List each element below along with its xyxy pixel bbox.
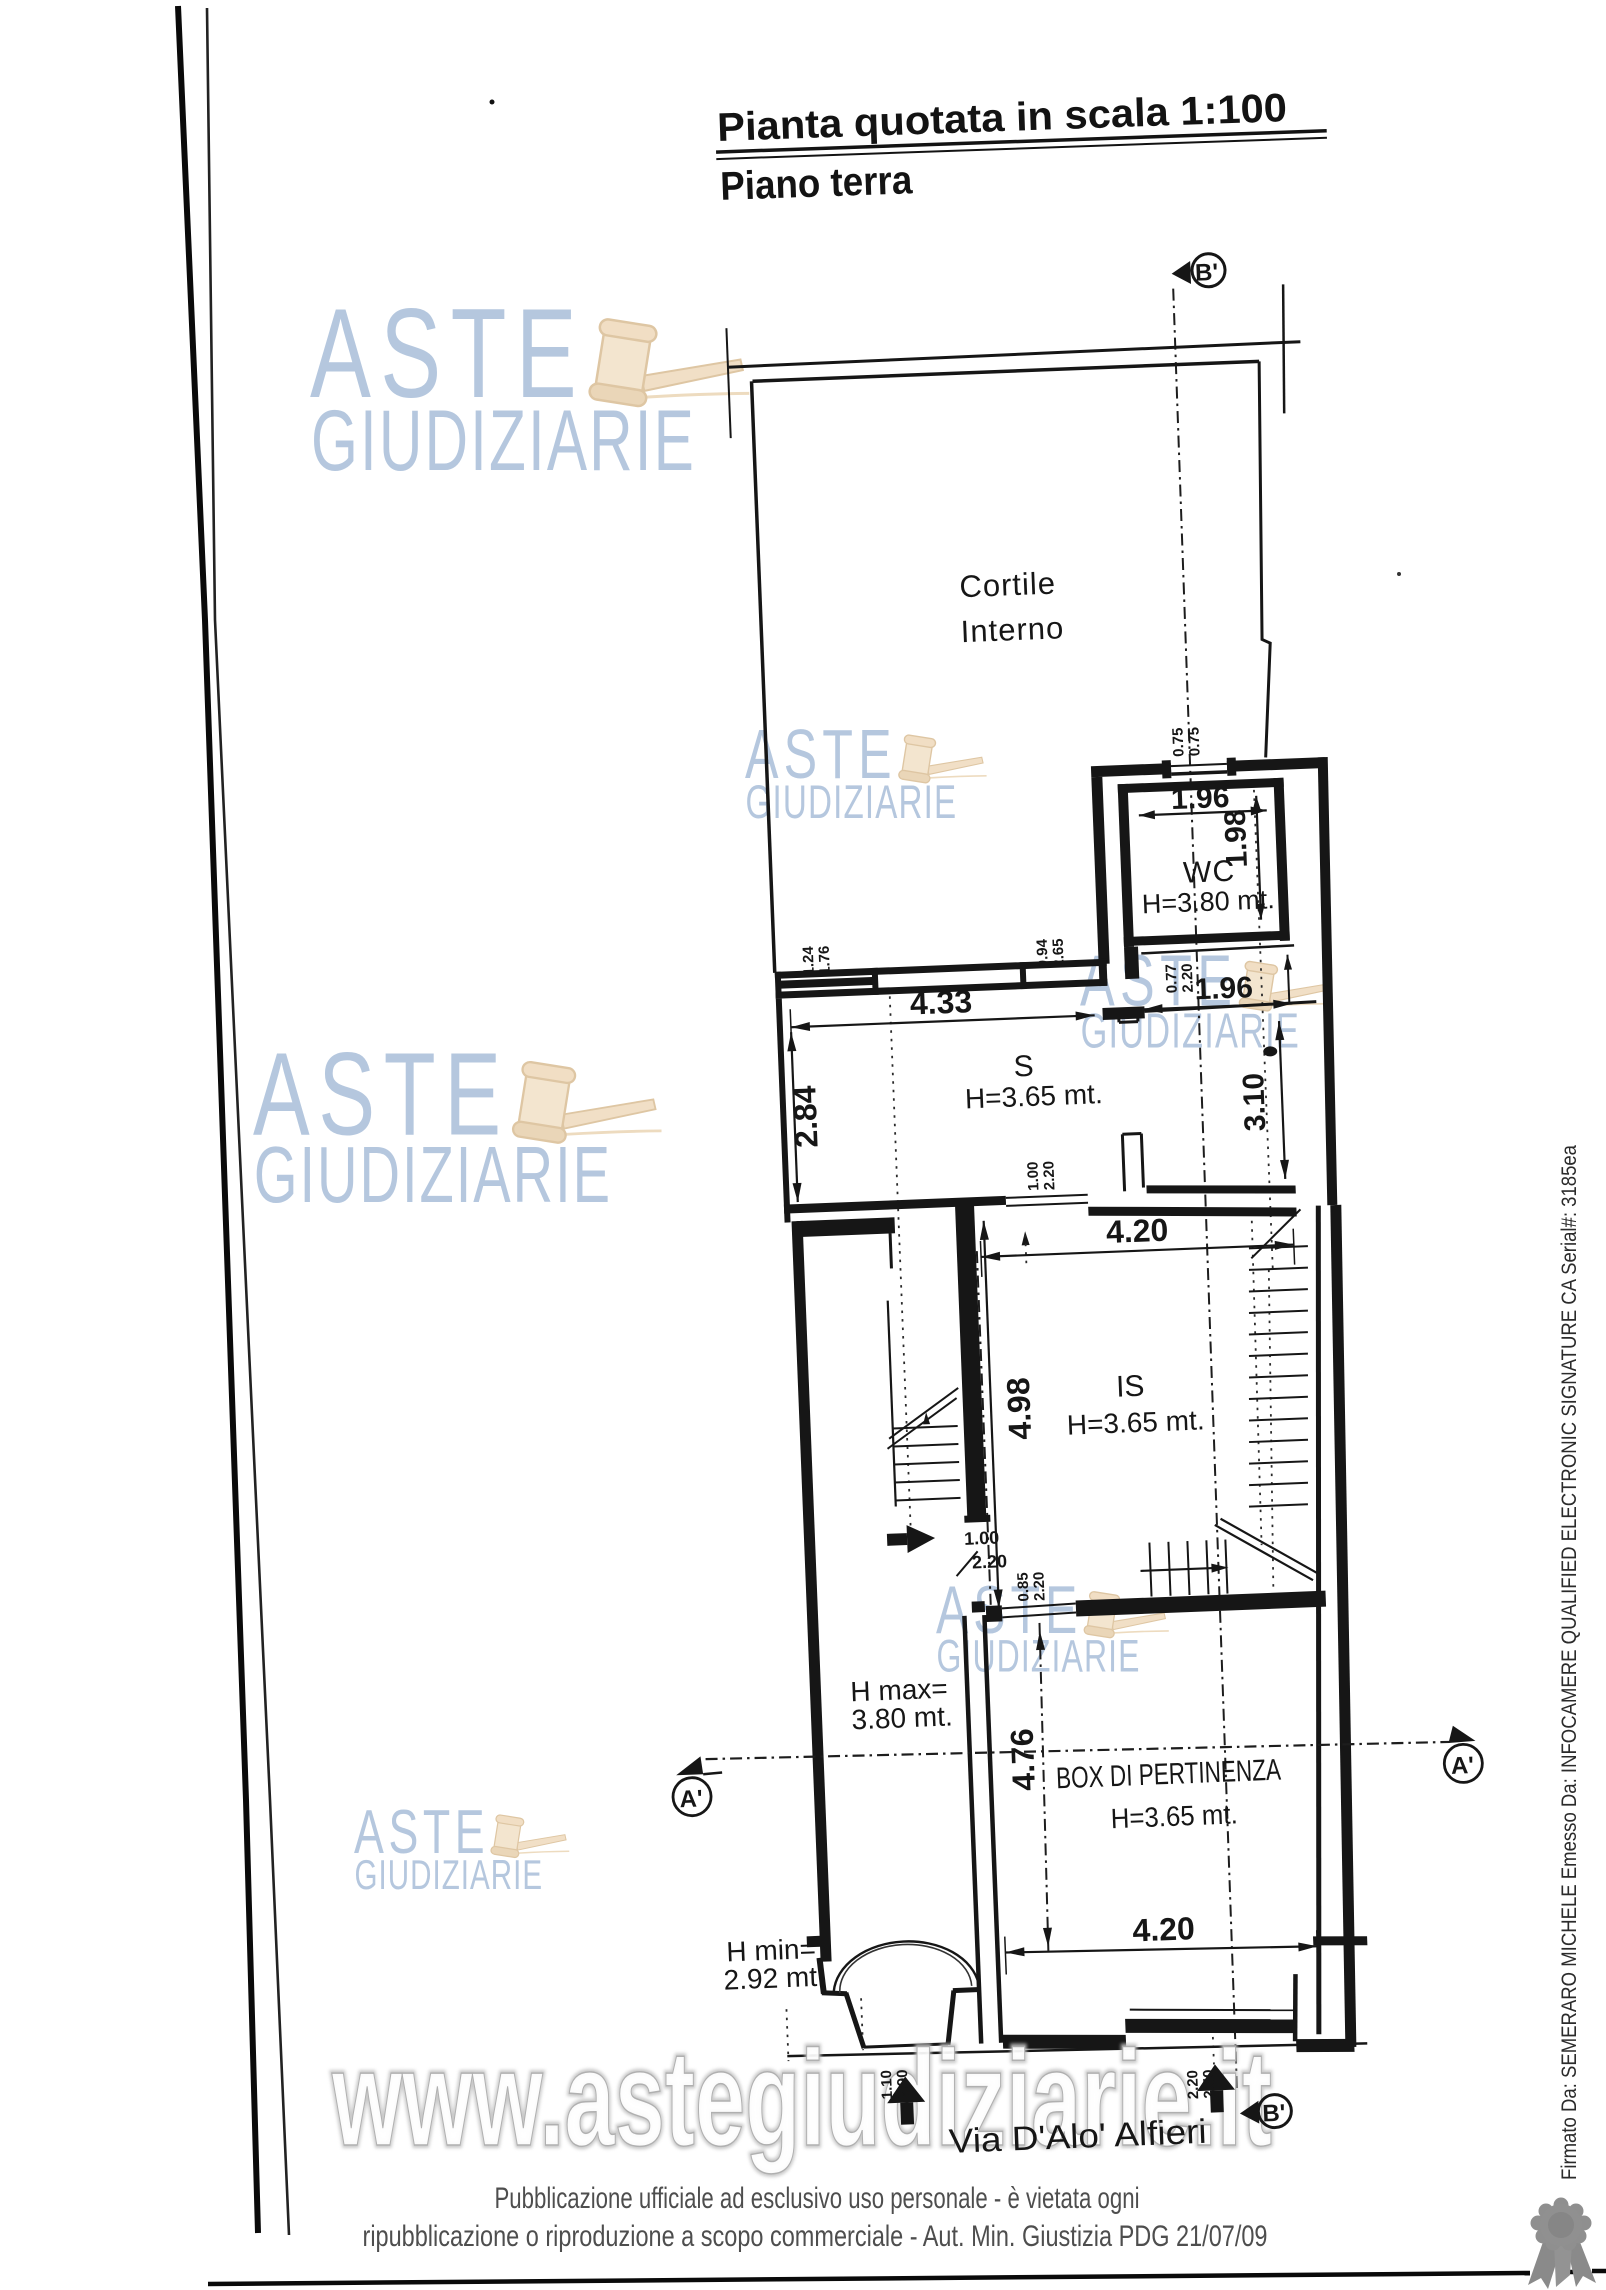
svg-text:3.80 mt.: 3.80 mt. [851, 1700, 953, 1735]
svg-text:IS: IS [1115, 1370, 1145, 1404]
svg-text:2.50: 2.50 [1200, 2069, 1218, 2099]
svg-text:Piano terra: Piano terra [720, 158, 914, 209]
svg-text:4.76: 4.76 [1004, 1728, 1042, 1792]
svg-text:1.00: 1.00 [964, 1527, 1000, 1548]
svg-text:A': A' [679, 1785, 703, 1813]
svg-text:WC: WC [1183, 855, 1236, 890]
svg-text:2.92 mt.: 2.92 mt. [723, 1961, 825, 1996]
svg-text:B': B' [1262, 2100, 1286, 2128]
svg-text:2.20: 2.20 [1040, 1161, 1058, 1191]
svg-text:ripubblicazione o riproduzione: ripubblicazione o riproduzione a scopo c… [363, 2220, 1268, 2253]
svg-text:1.76: 1.76 [816, 945, 834, 975]
svg-text:4.33: 4.33 [909, 983, 973, 1021]
svg-text:2.20: 2.20 [1030, 1571, 1048, 1601]
svg-text:Interno: Interno [960, 610, 1065, 649]
svg-text:1.96: 1.96 [1194, 971, 1254, 1006]
svg-text:2.90: 2.90 [894, 2069, 912, 2099]
svg-text:Cortile: Cortile [959, 565, 1057, 604]
svg-text:4.20: 4.20 [1132, 1910, 1196, 1948]
svg-text:Pubblicazione ufficiale ad esc: Pubblicazione ufficiale ad esclusivo uso… [495, 2182, 1140, 2215]
svg-text:H=3.65 mt.: H=3.65 mt. [1110, 1798, 1238, 1834]
svg-text:Firmato Da: SEMERARO MICHELE E: Firmato Da: SEMERARO MICHELE Emesso Da: … [1558, 1145, 1581, 2180]
svg-text:2.84: 2.84 [786, 1085, 824, 1149]
svg-text:H=3.65 mt.: H=3.65 mt. [964, 1078, 1103, 1114]
svg-text:4.98: 4.98 [1000, 1377, 1038, 1441]
svg-text:BOX DI PERTINENZA: BOX DI PERTINENZA [1055, 1754, 1281, 1796]
svg-text:A': A' [1450, 1752, 1474, 1780]
svg-text:3.10: 3.10 [1237, 1072, 1272, 1132]
svg-text:2.65: 2.65 [1050, 938, 1068, 968]
svg-text:S: S [1013, 1050, 1034, 1084]
svg-text:B': B' [1195, 259, 1219, 287]
svg-text:0.75: 0.75 [1185, 727, 1203, 757]
svg-text:H=3.65 mt.: H=3.65 mt. [1066, 1404, 1205, 1440]
svg-text:2.20: 2.20 [972, 1551, 1008, 1572]
svg-text:4.20: 4.20 [1105, 1212, 1169, 1250]
svg-text:H=3.80 mt.: H=3.80 mt. [1141, 884, 1275, 919]
